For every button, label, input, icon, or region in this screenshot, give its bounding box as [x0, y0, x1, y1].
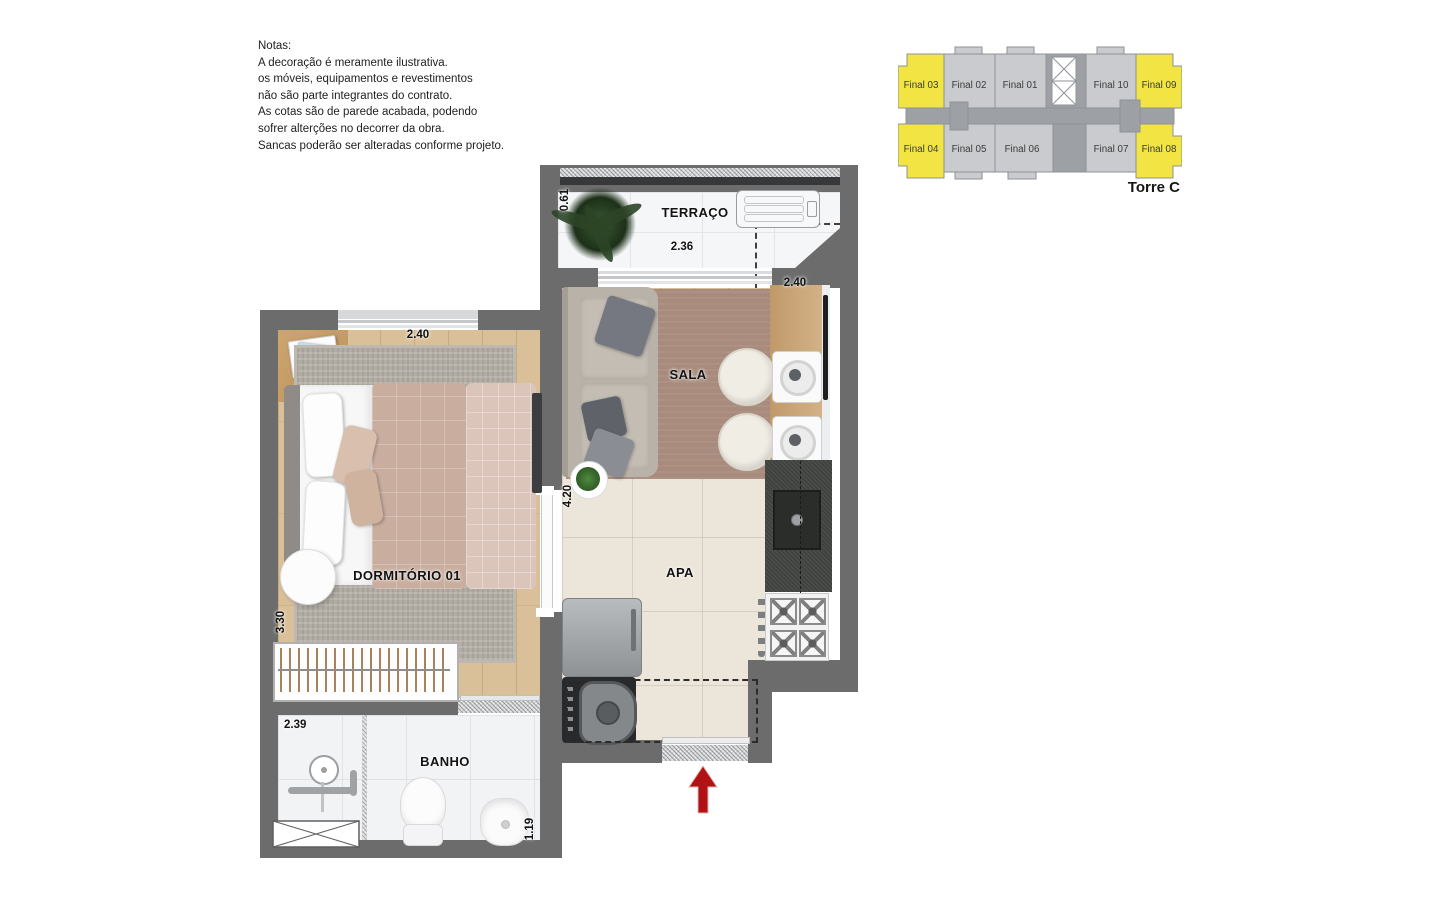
sala-label: SALA	[650, 367, 726, 383]
bathroom-sink	[480, 798, 529, 846]
sala-sliding-door	[598, 271, 772, 274]
terraco-label: TERRAÇO	[640, 205, 750, 221]
tower-tab	[955, 172, 982, 179]
toilet-tank	[403, 824, 443, 846]
palm-plant	[564, 187, 636, 261]
right-outer-wall	[840, 165, 858, 692]
drain-icon	[501, 820, 510, 829]
terraco-planter-ledge	[560, 168, 856, 177]
notes-line: os móveis, equipamentos e revestimentos	[258, 71, 504, 88]
bedroom-label: DORMITÓRIO 01	[322, 568, 492, 584]
burner-icon	[770, 630, 797, 657]
sala-sliding-door	[598, 276, 772, 279]
plant-foliage	[576, 467, 600, 491]
unit-label: Final 02	[952, 80, 987, 91]
unit-label: Final 08	[1142, 144, 1177, 155]
burner-icon	[799, 598, 826, 625]
bedroom-window	[338, 325, 478, 328]
shower-head-dot	[321, 767, 327, 773]
entry-arrow-icon	[688, 766, 718, 816]
apa-label: APA	[645, 565, 715, 580]
tower-name: Torre C	[1040, 179, 1180, 196]
unit-label: Final 03	[904, 80, 939, 91]
sofa	[562, 287, 658, 477]
kitchen-bottom-wall	[765, 660, 858, 692]
sala-sliding-door	[598, 281, 772, 284]
cooktop	[765, 593, 829, 661]
terraco-depth-dim: 0.61	[559, 178, 573, 222]
corridor-bump	[950, 102, 968, 130]
burner-icon	[770, 598, 797, 625]
faucet-icon	[791, 514, 803, 526]
fridge-handle	[631, 609, 636, 651]
terraco-width-dim: 2.36	[652, 241, 712, 256]
burner-icon	[799, 630, 826, 657]
corridor-bump	[1120, 100, 1140, 132]
ac-vent	[744, 196, 804, 204]
bedroom-depth-dim: 3.30	[275, 600, 289, 644]
unit-label: Final 09	[1142, 80, 1177, 91]
unit-label: Final 01	[1003, 80, 1038, 91]
ac-vent	[744, 214, 804, 222]
entry-threshold	[662, 745, 748, 761]
notes-line: sofrer alterções no decorrer da obra.	[258, 121, 504, 138]
service-dashed-outline	[566, 679, 758, 743]
entry-door-line	[662, 737, 750, 744]
bathroom-door-threshold	[458, 700, 540, 713]
duvet	[372, 383, 466, 589]
shower-box	[272, 820, 360, 848]
bathroom-door-line	[460, 695, 540, 701]
fridge	[562, 598, 642, 677]
door-jamb	[536, 608, 554, 617]
place-setting	[772, 351, 822, 403]
bedroom-sliding-door	[541, 494, 553, 610]
tower-tab	[1008, 172, 1036, 179]
notes-line: A decoração é meramente ilustrativa.	[258, 55, 504, 72]
notes-line: As cotas são de parede acabada, podendo	[258, 104, 504, 121]
clothes-rack	[273, 642, 459, 702]
tower-key-plan: Final 03 Final 02 Final 01 Final 10 Fina…	[898, 44, 1182, 180]
ac-vent	[744, 205, 804, 213]
bedroom-window	[338, 320, 478, 323]
kitchen-sink	[773, 490, 821, 550]
middle-wall-upper	[540, 288, 562, 490]
bedroom-window-sill	[338, 310, 478, 319]
dining-chair	[718, 348, 776, 406]
bedroom-tv	[532, 393, 542, 493]
unit-label: Final 04	[904, 144, 939, 155]
grab-bar	[288, 787, 356, 794]
unit-label: Final 05	[952, 144, 987, 155]
stove-knobs	[758, 597, 765, 657]
unit-label: Final 10	[1094, 80, 1129, 91]
toilet	[400, 777, 446, 831]
shower-column	[309, 755, 339, 785]
notes-block: Notas: A decoração é meramente ilustrati…	[258, 38, 504, 154]
plate-icon	[780, 360, 816, 396]
floorplan-page: { "notes": { "title": "Notas:", "lines":…	[0, 0, 1440, 900]
tv	[823, 295, 828, 400]
corridor-stub	[1053, 124, 1086, 172]
bedroom-top-wall	[278, 310, 338, 330]
middle-wall-lower	[540, 612, 562, 840]
bedroom-width-dim: 2.40	[378, 329, 458, 344]
notes-line: não são parte integrantes do contrato.	[258, 88, 504, 105]
bathroom-width-dim: 2.39	[284, 719, 334, 733]
terraco-glass-rail	[560, 177, 856, 185]
shower-tile-strip	[362, 715, 367, 840]
terraco-chamfer	[795, 228, 840, 268]
apa-length-dim: 4.20	[562, 474, 576, 518]
hanger-rail	[278, 669, 450, 671]
plate-icon	[780, 425, 816, 461]
ac-pipe	[807, 201, 817, 217]
sala-top-wall	[540, 268, 598, 288]
unit-label: Final 06	[1005, 144, 1040, 155]
notes-title: Notas:	[258, 38, 504, 55]
floor-plan: 0.61 TERRAÇO 2.36 SALA 2.40	[260, 165, 858, 858]
unit-label: Final 07	[1094, 144, 1129, 155]
notes-line: Sancas poderão ser alteradas conforme pr…	[258, 138, 504, 155]
bathroom-depth-dim: 1.19	[524, 807, 538, 851]
duvet	[466, 383, 536, 589]
bathroom-label: BANHO	[400, 754, 490, 769]
grab-bar	[350, 770, 357, 796]
left-outer-wall	[260, 310, 278, 858]
sala-counter-dim: 2.40	[765, 277, 825, 292]
